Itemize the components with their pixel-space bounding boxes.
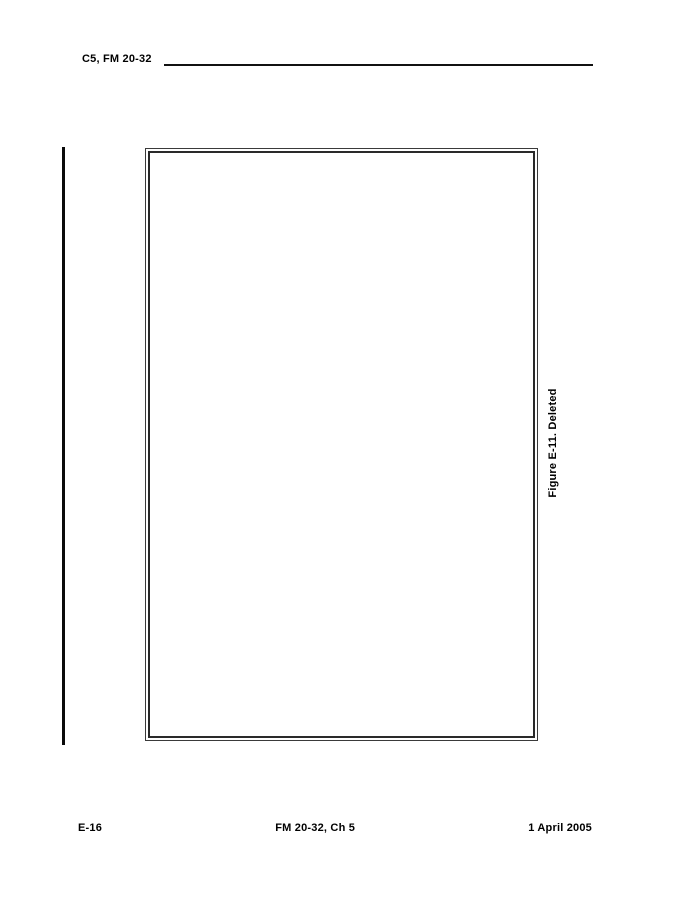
figure-caption: Figure E-11. Deleted	[546, 378, 560, 508]
figure-placeholder-box	[145, 148, 538, 741]
figure-placeholder-box-inner-border	[148, 151, 535, 738]
header-document-title: C5, FM 20-32	[82, 53, 152, 65]
footer-date: 1 April 2005	[528, 822, 592, 834]
page-footer: E-16 FM 20-32, Ch 5 1 April 2005	[78, 822, 592, 834]
header-rule	[164, 64, 593, 66]
footer-page-number: E-16	[78, 822, 102, 834]
change-bar	[62, 147, 65, 745]
footer-manual-reference: FM 20-32, Ch 5	[275, 822, 355, 834]
document-page: { "document": { "header": { "title": "C5…	[0, 0, 695, 899]
